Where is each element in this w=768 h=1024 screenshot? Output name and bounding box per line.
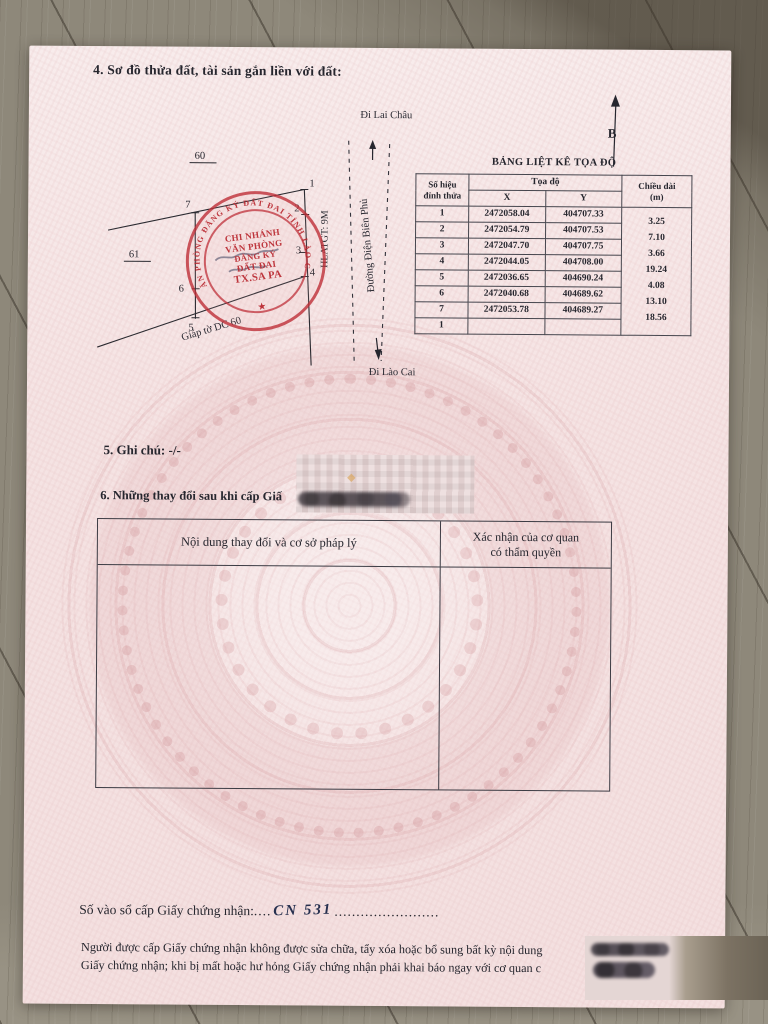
col-y-header: Y xyxy=(545,191,622,208)
artifact-dot xyxy=(347,474,355,482)
registry-number-line: Số vào sổ cấp Giấy chứng nhận:....CN 531… xyxy=(79,902,439,922)
col-vertex-header: Số hiệu đỉnh thửa xyxy=(416,174,469,206)
handwritten-registry-number: CN 531 xyxy=(273,902,333,921)
certificate-page: 4. Sơ đồ thửa đất, tài sản gắn liền với … xyxy=(23,46,732,1009)
table-row: 12472058.04404707.33 3.25 7.10 3.66 19.2… xyxy=(416,206,692,224)
changes-col1-body xyxy=(96,565,441,789)
changes-table: Nội dung thay đổi và cơ sở pháp lý Xác n… xyxy=(95,518,612,792)
redacted-text-smudge xyxy=(593,962,655,978)
parcel-60-label: 60 xyxy=(195,151,206,162)
redaction-blur-footer xyxy=(585,936,768,1000)
parcel-61-label: 61 xyxy=(129,249,140,260)
redaction-blur-section6 xyxy=(296,454,474,513)
redacted-text-smudge xyxy=(298,491,410,507)
col-x-header: X xyxy=(469,190,546,207)
changes-col1-header: Nội dung thay đổi và cơ sở pháp lý xyxy=(98,519,441,567)
section6-title: 6. Những thay đổi sau khi cấp Giấ xyxy=(100,488,282,504)
length-column: 3.25 7.10 3.66 19.24 4.08 13.10 18.56 xyxy=(621,207,692,335)
coordinate-table-title: BẢNG LIỆT KÊ TỌA ĐỘ xyxy=(416,156,693,169)
section5-title: 5. Ghi chú: -/- xyxy=(103,442,180,459)
vertex-6-label: 6 xyxy=(179,284,184,295)
col-length-header: Chiều dài (m) xyxy=(622,175,692,207)
office-stamp: VĂN PHÒNG ĐĂNG KÝ ĐẤT ĐAI TỈNH LÀO CAI C… xyxy=(177,183,334,340)
changes-col2-body xyxy=(439,567,611,790)
road-name-label: Đường Điện Biên Phủ xyxy=(357,175,379,315)
changes-col2-header: Xác nhận của cơ quan có thẩm quyền xyxy=(441,521,611,568)
coordinate-table: Số hiệu đỉnh thửa Tọa độ Chiều dài (m) X… xyxy=(414,173,692,336)
photo-of-land-certificate: { "document": { "section4_title": "4. Sơ… xyxy=(0,0,768,1024)
redacted-text-smudge xyxy=(591,943,669,956)
col-coord-header: Tọa độ xyxy=(469,174,622,191)
footer-note-line2: Giấy chứng nhận; khi bị mất hoặc hư hỏng… xyxy=(81,958,541,976)
svg-text:B: B xyxy=(608,126,617,141)
footer-note-line1: Người được cấp Giấy chứng nhận không đượ… xyxy=(81,940,542,958)
section4-title: 4. Sơ đồ thửa đất, tài sản gắn liền với … xyxy=(93,62,342,80)
registry-label: Số vào sổ cấp Giấy chứng nhận: xyxy=(79,902,254,918)
north-arrow-icon: B xyxy=(608,95,621,167)
destination-top-label: Đi Lai Châu xyxy=(329,110,444,122)
destination-bottom-label: Đi Lào Cai xyxy=(342,367,442,379)
